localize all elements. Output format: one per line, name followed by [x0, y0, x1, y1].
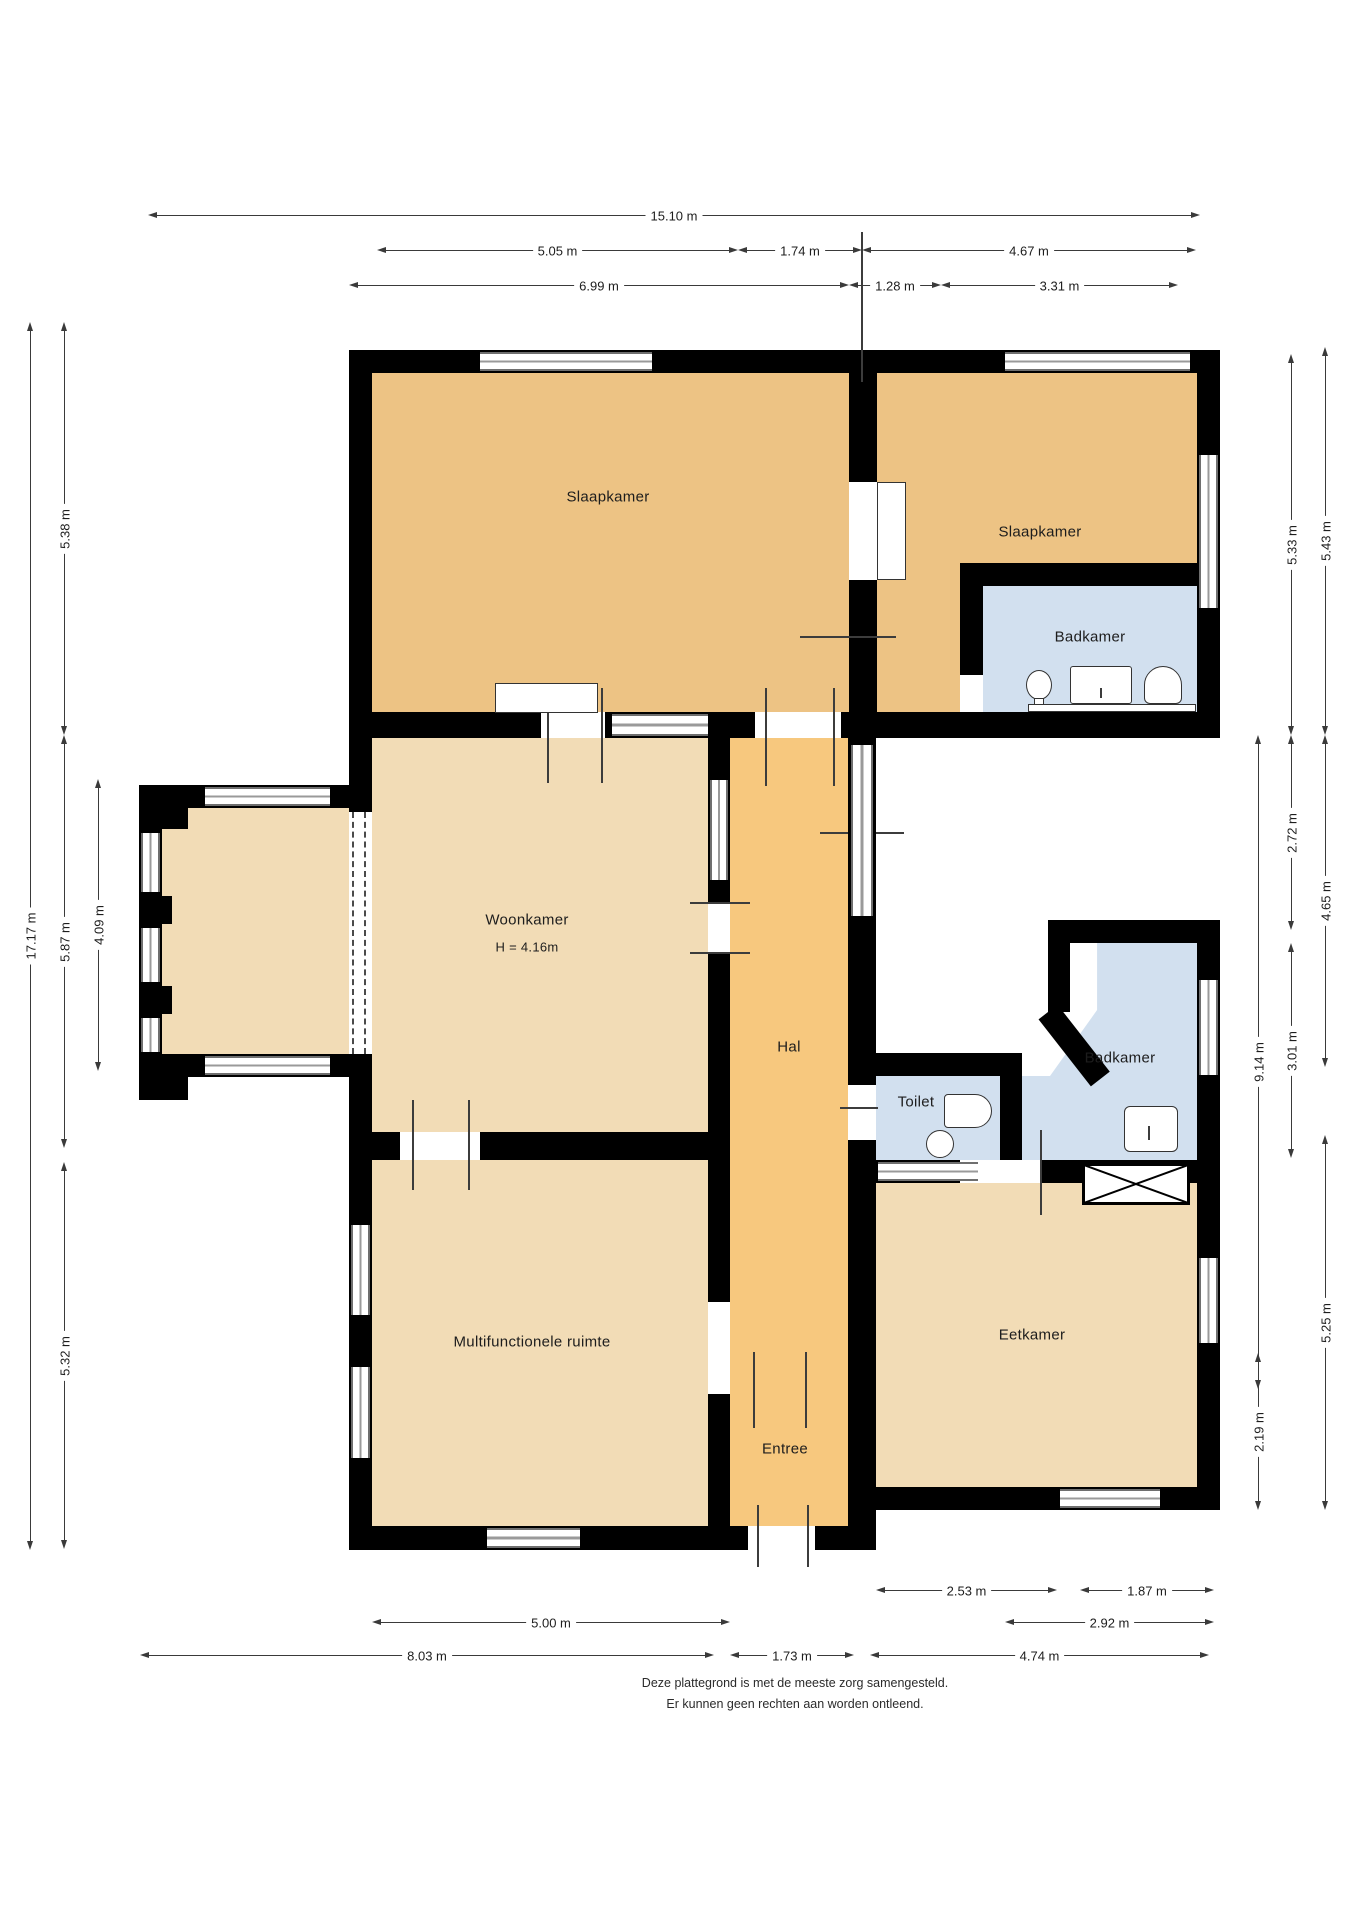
disclaimer-line-1: Deze plattegrond is met de meeste zorg s… — [642, 1676, 948, 1690]
dim-bottom-8-03: 8.03 m — [140, 1651, 714, 1660]
label-hal: Hal — [777, 1039, 800, 1056]
dim-left-5-38: 5.38 m — [60, 322, 69, 735]
dim-left-5-87: 5.87 m — [60, 735, 69, 1148]
wall-erker-post-2 — [139, 986, 172, 1014]
door-line-woonkamer-2 — [601, 688, 603, 783]
wall-badkamer-mid-left — [1048, 920, 1070, 1012]
dim-right-5-33: 5.33 m — [1287, 354, 1296, 735]
dim-right-3-01: 3.01 m — [1287, 943, 1296, 1158]
door-line-entree-1 — [753, 1352, 755, 1428]
wall-eetkamer-bottom — [848, 1487, 1220, 1510]
label-badkamer-mid: Badkamer — [1085, 1050, 1156, 1067]
door-line-multi-1 — [412, 1100, 414, 1190]
dim-bottom-2-92: 2.92 m — [1005, 1618, 1214, 1627]
label-toilet: Toilet — [898, 1094, 935, 1111]
window-right-bedroom — [1199, 455, 1218, 608]
wall-left-upper — [349, 350, 372, 812]
room-erker — [162, 808, 349, 1054]
label-multifunctioneel: Multifunctionele ruimte — [454, 1334, 611, 1351]
window-multi-bottom — [487, 1528, 580, 1548]
window-erker-1 — [141, 833, 160, 892]
dashed-line-erker-2 — [364, 812, 366, 1054]
window-hal-courtyard — [851, 745, 873, 916]
dim-right-5-25: 5.25 m — [1321, 1135, 1330, 1510]
window-badkamer-mid — [1199, 980, 1218, 1075]
door-line-hal-top-1 — [765, 688, 767, 786]
wall-badkamer-top-left — [960, 586, 983, 675]
door-line-frontdoor-1 — [757, 1505, 759, 1567]
label-entree: Entree — [762, 1441, 808, 1458]
sink-badkamer-top — [1144, 666, 1182, 704]
window-left-multi-2 — [351, 1367, 370, 1458]
dim-right-9-14: 9.14 m — [1254, 735, 1263, 1389]
dim-top-1-28: 1.28 m — [849, 281, 941, 290]
window-erker-top — [205, 787, 330, 806]
door-gap-hal-top — [755, 712, 841, 738]
label-woonkamer: Woonkamer — [485, 912, 568, 929]
toilet-bowl-badkamer-top — [1026, 670, 1052, 700]
tick-courtyard-2 — [876, 832, 904, 834]
dim-bottom-1-73: 1.73 m — [730, 1651, 854, 1660]
tick-courtyard-1 — [820, 832, 848, 834]
vanity-badkamer-top — [1070, 666, 1132, 704]
window-erker-2 — [141, 928, 160, 982]
room-hal — [730, 735, 848, 1526]
dim-left-5-32: 5.32 m — [60, 1162, 69, 1549]
wall-erker-post-1 — [139, 896, 172, 924]
door-gap-bedroom-divider — [849, 482, 877, 580]
tap-vanity-top — [1100, 688, 1102, 698]
label-eetkamer: Eetkamer — [999, 1327, 1066, 1344]
door-leaf-bedroom-right — [877, 482, 906, 580]
label-slaapkamer-right: Slaapkamer — [998, 524, 1081, 541]
door-gap-toilet — [848, 1085, 876, 1140]
dim-bottom-2-53: 2.53 m — [876, 1586, 1057, 1595]
window-top-left — [480, 352, 652, 371]
dashed-line-erker-1 — [352, 812, 354, 1054]
counter-badkamer-top — [1028, 704, 1196, 712]
door-line-multi-2 — [468, 1100, 470, 1190]
window-toilet-bottom — [878, 1162, 978, 1181]
door-line-entree-2 — [805, 1352, 807, 1428]
wall-badkamer-mid-top — [1048, 920, 1220, 943]
dim-top-3-31: 3.31 m — [941, 281, 1178, 290]
wall-toilet-top — [848, 1053, 1022, 1076]
door-line-woonkamer-hal-2 — [690, 952, 750, 954]
door-gap-multi-hal — [708, 1302, 730, 1394]
dim-total-width: 15.10 m — [148, 211, 1200, 220]
dim-bottom-5-00: 5.00 m — [372, 1618, 730, 1627]
dim-top-1-74: 1.74 m — [738, 246, 862, 255]
door-line-toilet — [840, 1107, 878, 1109]
dim-left-4-09: 4.09 m — [94, 779, 103, 1071]
dim-top-5-05: 5.05 m — [377, 246, 738, 255]
dim-right-5-43: 5.43 m — [1321, 347, 1330, 735]
window-eetkamer-right — [1199, 1258, 1218, 1343]
disclaimer-line-2: Er kunnen geen rechten aan worden ontlee… — [666, 1697, 923, 1711]
room-slaapkamer-left — [372, 373, 849, 712]
dim-top-4-67: 4.67 m — [862, 246, 1196, 255]
window-hal-left — [710, 780, 728, 880]
wall-right-lower — [1197, 1183, 1220, 1510]
door-line-hal-top-2 — [833, 688, 835, 786]
closet-cross-box — [1082, 1163, 1190, 1205]
dim-total-height: 17.17 m — [26, 322, 35, 1550]
window-eetkamer-bottom — [1060, 1489, 1160, 1508]
door-line-divider — [800, 636, 896, 638]
label-slaapkamer-left: Slaapkamer — [566, 489, 649, 506]
room-woonkamer — [372, 735, 708, 1132]
dim-bottom-4-74: 4.74 m — [870, 1651, 1209, 1660]
label-woonkamer-height: H = 4.16m — [495, 940, 558, 955]
tap-badkamer-mid — [1148, 1126, 1150, 1140]
window-left-multi-1 — [351, 1225, 370, 1315]
door-gap-woonkamer-hal — [708, 904, 730, 952]
window-bedroom-bottom — [612, 714, 708, 736]
label-badkamer-top: Badkamer — [1055, 629, 1126, 646]
door-line-frontdoor-2 — [807, 1505, 809, 1567]
dim-right-4-65: 4.65 m — [1321, 735, 1330, 1067]
floor-plan: Slaapkamer Slaapkamer Badkamer Woonkamer… — [0, 0, 1358, 1920]
window-erker-3 — [141, 1018, 160, 1052]
door-gap-badkamer-top — [960, 675, 983, 712]
dim-top-6-99: 6.99 m — [349, 281, 849, 290]
sink-toilet-room — [926, 1130, 954, 1158]
dim-bottom-1-87: 1.87 m — [1080, 1586, 1214, 1595]
door-line-woonkamer-hal-1 — [690, 902, 750, 904]
wall-toilet-right — [1000, 1053, 1022, 1160]
window-top-right — [1005, 352, 1190, 371]
wall-erker-corner-top — [139, 785, 188, 829]
wc-toilet-room — [944, 1094, 992, 1128]
door-line-eetkamer — [1040, 1130, 1042, 1215]
dim-right-2-72: 2.72 m — [1287, 735, 1296, 930]
door-gap-woonkamer-top — [541, 712, 605, 738]
dim-right-2-19: 2.19 m — [1254, 1353, 1263, 1510]
window-erker-bottom — [205, 1056, 330, 1075]
wall-erker-corner-bottom — [139, 1056, 188, 1100]
sink-badkamer-mid — [1124, 1106, 1178, 1152]
wall-badkamer-top-top — [960, 563, 1197, 586]
dresser-bedroom-left — [495, 683, 598, 713]
